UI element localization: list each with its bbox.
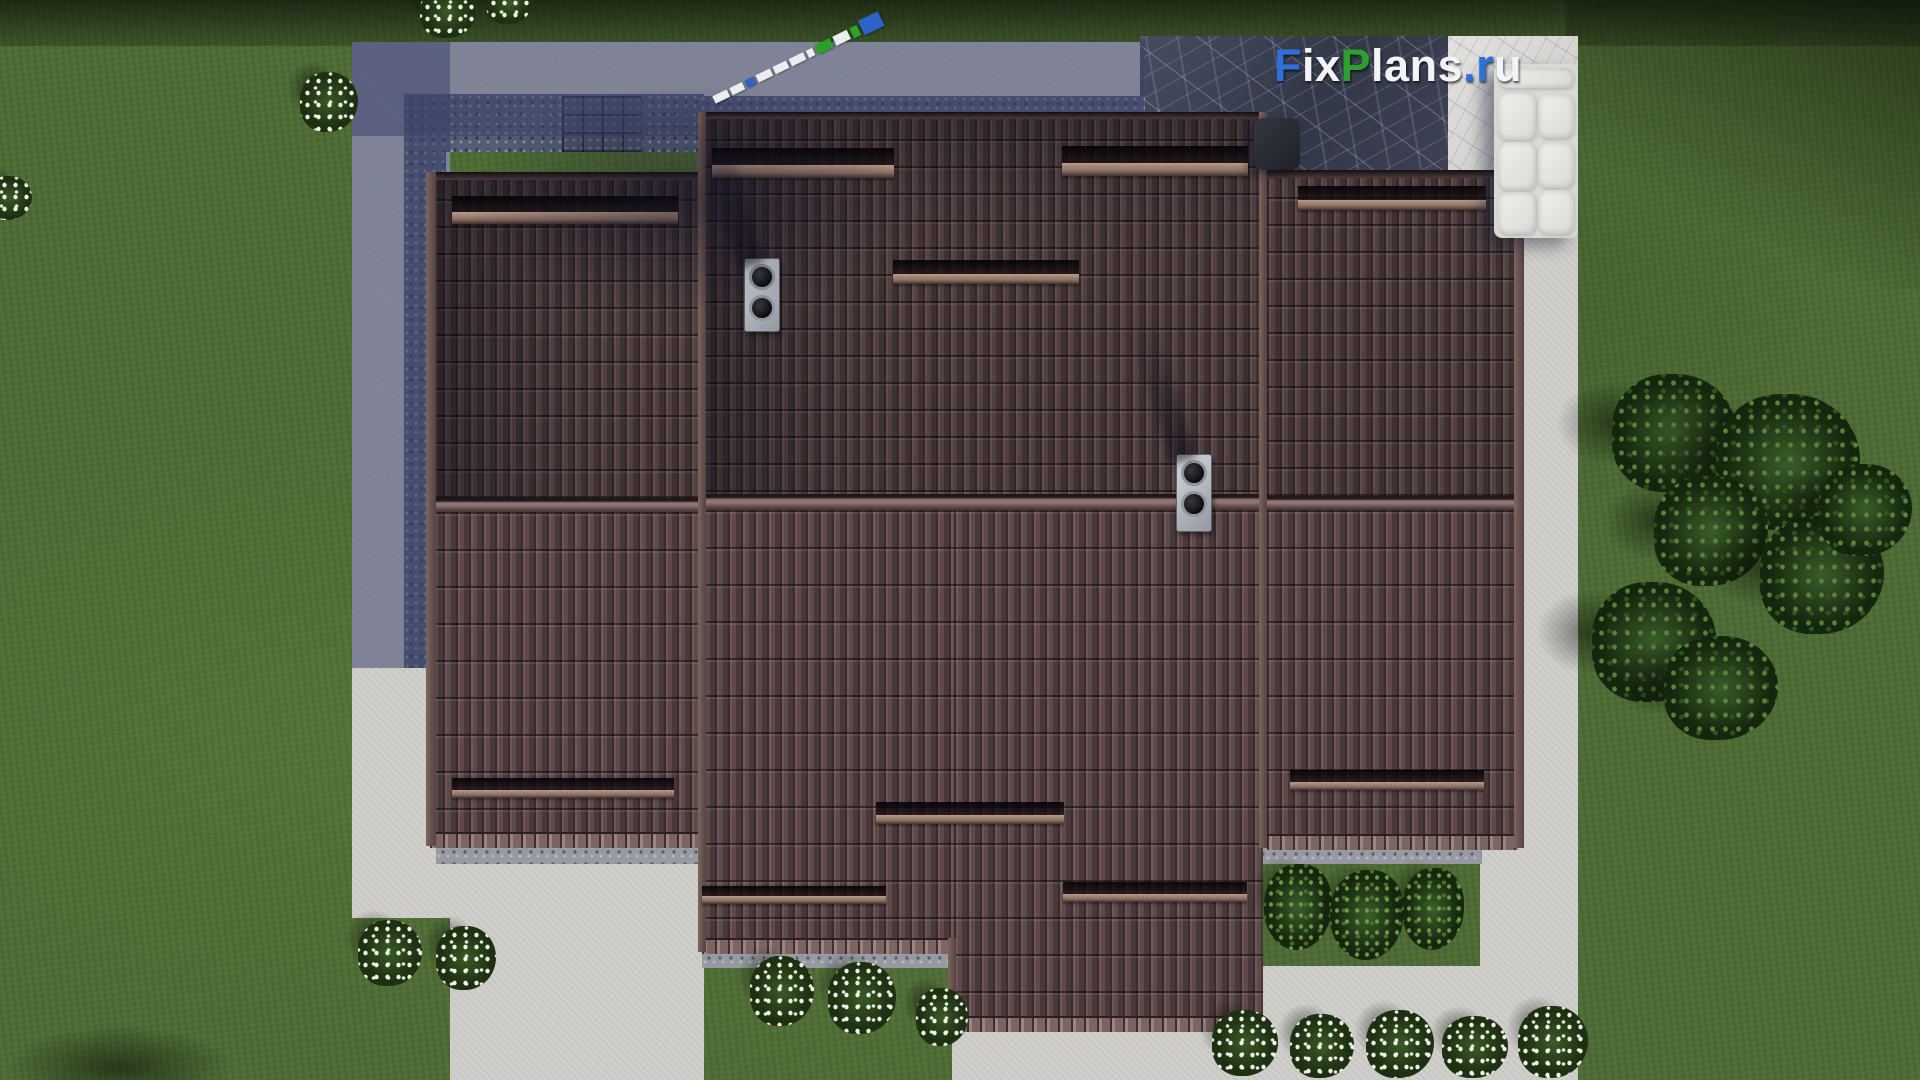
snow-guard [452, 196, 678, 224]
vent-pipe [749, 264, 775, 290]
path-right-vertical [1480, 848, 1578, 968]
flower-bush [420, 0, 476, 38]
tree [1664, 636, 1778, 740]
snow-guard [712, 148, 894, 178]
snow-guard [1062, 146, 1248, 176]
roof-center-top-edge [702, 112, 1263, 119]
sofa-cushion [1498, 192, 1536, 234]
roof-valley-right-trim [1259, 112, 1267, 848]
flower-bush [1518, 1006, 1588, 1078]
flower-bush [916, 988, 968, 1046]
roof-vent [744, 258, 780, 332]
flower-bush [358, 920, 422, 986]
watermark-letter: lans [1371, 40, 1463, 91]
snow-guard [1290, 770, 1484, 790]
roof-right-wing-top-edge [1267, 170, 1518, 178]
watermark-letter: . [1463, 40, 1476, 91]
flower-bush [0, 176, 32, 220]
ruler-segment [745, 77, 757, 88]
sofa-cushion [1538, 94, 1574, 138]
watermark-letter: P [1341, 40, 1372, 91]
snow-guard [702, 886, 886, 904]
sofa-cushion [1538, 190, 1574, 234]
snow-guard [876, 802, 1064, 824]
ruler-segment [729, 82, 745, 95]
snow-guard [1298, 186, 1486, 210]
fixplans-watermark: FixPlans.ru [1274, 40, 1522, 92]
snow-guard [452, 778, 674, 798]
aerial-house-render: FixPlans.ru [0, 0, 1920, 1080]
watermark-letter: ix [1302, 40, 1341, 91]
sofa-cushion [1498, 142, 1536, 190]
roof-right-fascia [1514, 170, 1524, 848]
roof-right-wing-upper-slope [1267, 170, 1518, 500]
roof-left-wing-ridge [430, 498, 700, 512]
roof-left-wing-eave [430, 832, 700, 848]
roof-vent [1176, 454, 1212, 532]
snow-guard [1063, 882, 1247, 902]
ruler-segment [849, 24, 861, 37]
ruler-segment [832, 30, 851, 46]
watermark-letter: F [1274, 40, 1302, 91]
ruler-segment [755, 68, 773, 82]
vent-pipe [1181, 460, 1207, 486]
ruler-segment [806, 48, 816, 58]
roof-center-lower-right-slope [954, 510, 1263, 1016]
outdoor-chair [1254, 118, 1300, 170]
roof-left-fascia [426, 172, 436, 846]
vent-pipe [1181, 491, 1207, 517]
vent-pipe [749, 295, 775, 321]
sofa-cushion [1538, 142, 1574, 188]
flower-bush [828, 962, 896, 1034]
flower-bush [300, 72, 358, 132]
roof-right-wing-ridge [1267, 496, 1518, 510]
roof-center-lower-left-slope [702, 510, 954, 938]
granite-border-top [404, 94, 704, 152]
roof-valley-left-trim [698, 112, 706, 952]
tree [1818, 464, 1912, 556]
cobble-block [562, 96, 642, 152]
snow-guard [893, 260, 1079, 284]
sofa-cushion [1498, 92, 1536, 140]
watermark-letter: r [1476, 40, 1494, 91]
green-bush [1402, 868, 1464, 950]
flower-bush [436, 926, 496, 990]
watermark-letter: u [1494, 40, 1522, 91]
ruler-segment [789, 52, 807, 66]
flower-bush [486, 0, 532, 24]
ruler-segment [712, 89, 730, 103]
ruler-segment [772, 60, 789, 74]
roof-left-wing-top-edge [430, 172, 700, 180]
